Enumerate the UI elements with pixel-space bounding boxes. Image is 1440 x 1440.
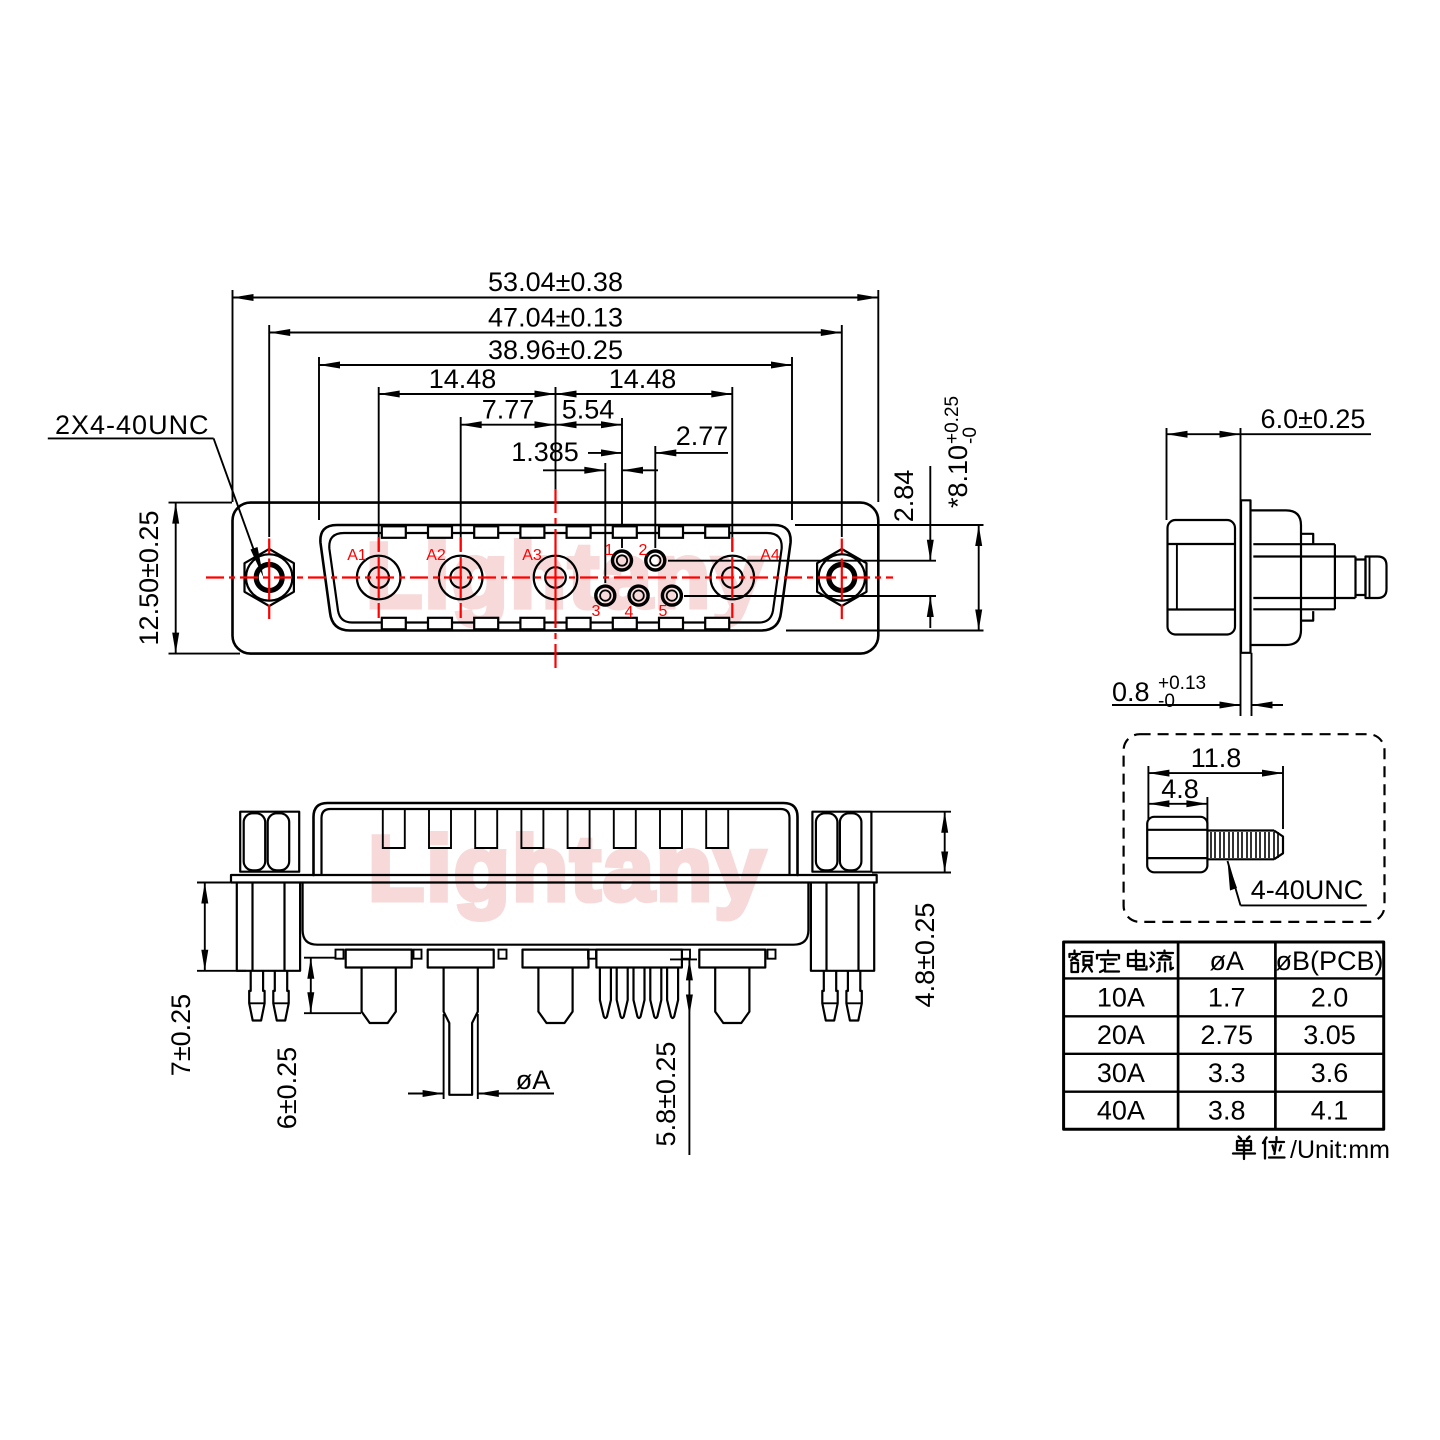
svg-text:2.75: 2.75 (1200, 1020, 1253, 1050)
svg-text:0.8: 0.8 (1112, 677, 1150, 707)
svg-text:7±0.25: 7±0.25 (166, 994, 196, 1076)
svg-text:øA: øA (516, 1065, 551, 1095)
svg-text:5.54: 5.54 (562, 395, 615, 425)
svg-text:47.04±0.13: 47.04±0.13 (488, 303, 623, 333)
svg-text:40A: 40A (1097, 1096, 1145, 1126)
svg-text:/Unit:mm: /Unit:mm (1290, 1136, 1390, 1164)
svg-text:53.04±0.38: 53.04±0.38 (488, 267, 623, 297)
svg-text:4.8: 4.8 (1161, 774, 1199, 804)
svg-text:4-40UNC: 4-40UNC (1251, 875, 1364, 905)
svg-text:-0: -0 (1158, 691, 1175, 712)
svg-text:11.8: 11.8 (1191, 743, 1242, 773)
svg-text:A4: A4 (760, 547, 780, 564)
svg-text:*8.10: *8.10 (943, 445, 973, 508)
svg-text:A1: A1 (347, 547, 367, 564)
svg-text:2.0: 2.0 (1311, 983, 1349, 1013)
svg-text:4: 4 (625, 604, 634, 621)
svg-text:2.77: 2.77 (676, 421, 729, 451)
svg-text:A3: A3 (522, 547, 542, 564)
svg-text:A2: A2 (426, 547, 446, 564)
svg-text:3.6: 3.6 (1311, 1058, 1349, 1088)
svg-text:1: 1 (605, 542, 614, 559)
svg-text:12.50±0.25: 12.50±0.25 (134, 511, 164, 646)
svg-text:30A: 30A (1097, 1058, 1145, 1088)
svg-text:3: 3 (592, 603, 601, 620)
svg-text:4.8±0.25: 4.8±0.25 (910, 903, 940, 1008)
svg-text:øB(PCB): øB(PCB) (1276, 946, 1384, 976)
svg-text:2.84: 2.84 (889, 470, 919, 523)
svg-text:øA: øA (1209, 946, 1244, 976)
svg-text:14.48: 14.48 (609, 364, 677, 394)
svg-text:1.7: 1.7 (1208, 983, 1246, 1013)
svg-text:20A: 20A (1097, 1020, 1145, 1050)
svg-text:3.05: 3.05 (1303, 1020, 1356, 1050)
svg-text:2X4-40UNC: 2X4-40UNC (55, 410, 210, 440)
svg-text:7.77: 7.77 (482, 395, 535, 425)
svg-text:1.385: 1.385 (511, 437, 579, 467)
svg-text:6±0.25: 6±0.25 (272, 1047, 302, 1129)
svg-text:-0: -0 (960, 427, 981, 444)
svg-text:3.3: 3.3 (1208, 1058, 1246, 1088)
svg-text:5: 5 (659, 603, 668, 620)
svg-text:3.8: 3.8 (1208, 1096, 1246, 1126)
svg-text:4.1: 4.1 (1311, 1096, 1349, 1126)
svg-text:6.0±0.25: 6.0±0.25 (1261, 404, 1366, 434)
svg-text:2: 2 (639, 542, 648, 559)
svg-text:14.48: 14.48 (429, 364, 497, 394)
svg-text:5.8±0.25: 5.8±0.25 (651, 1042, 681, 1147)
svg-text:38.96±0.25: 38.96±0.25 (488, 335, 623, 365)
svg-text:10A: 10A (1097, 983, 1145, 1013)
